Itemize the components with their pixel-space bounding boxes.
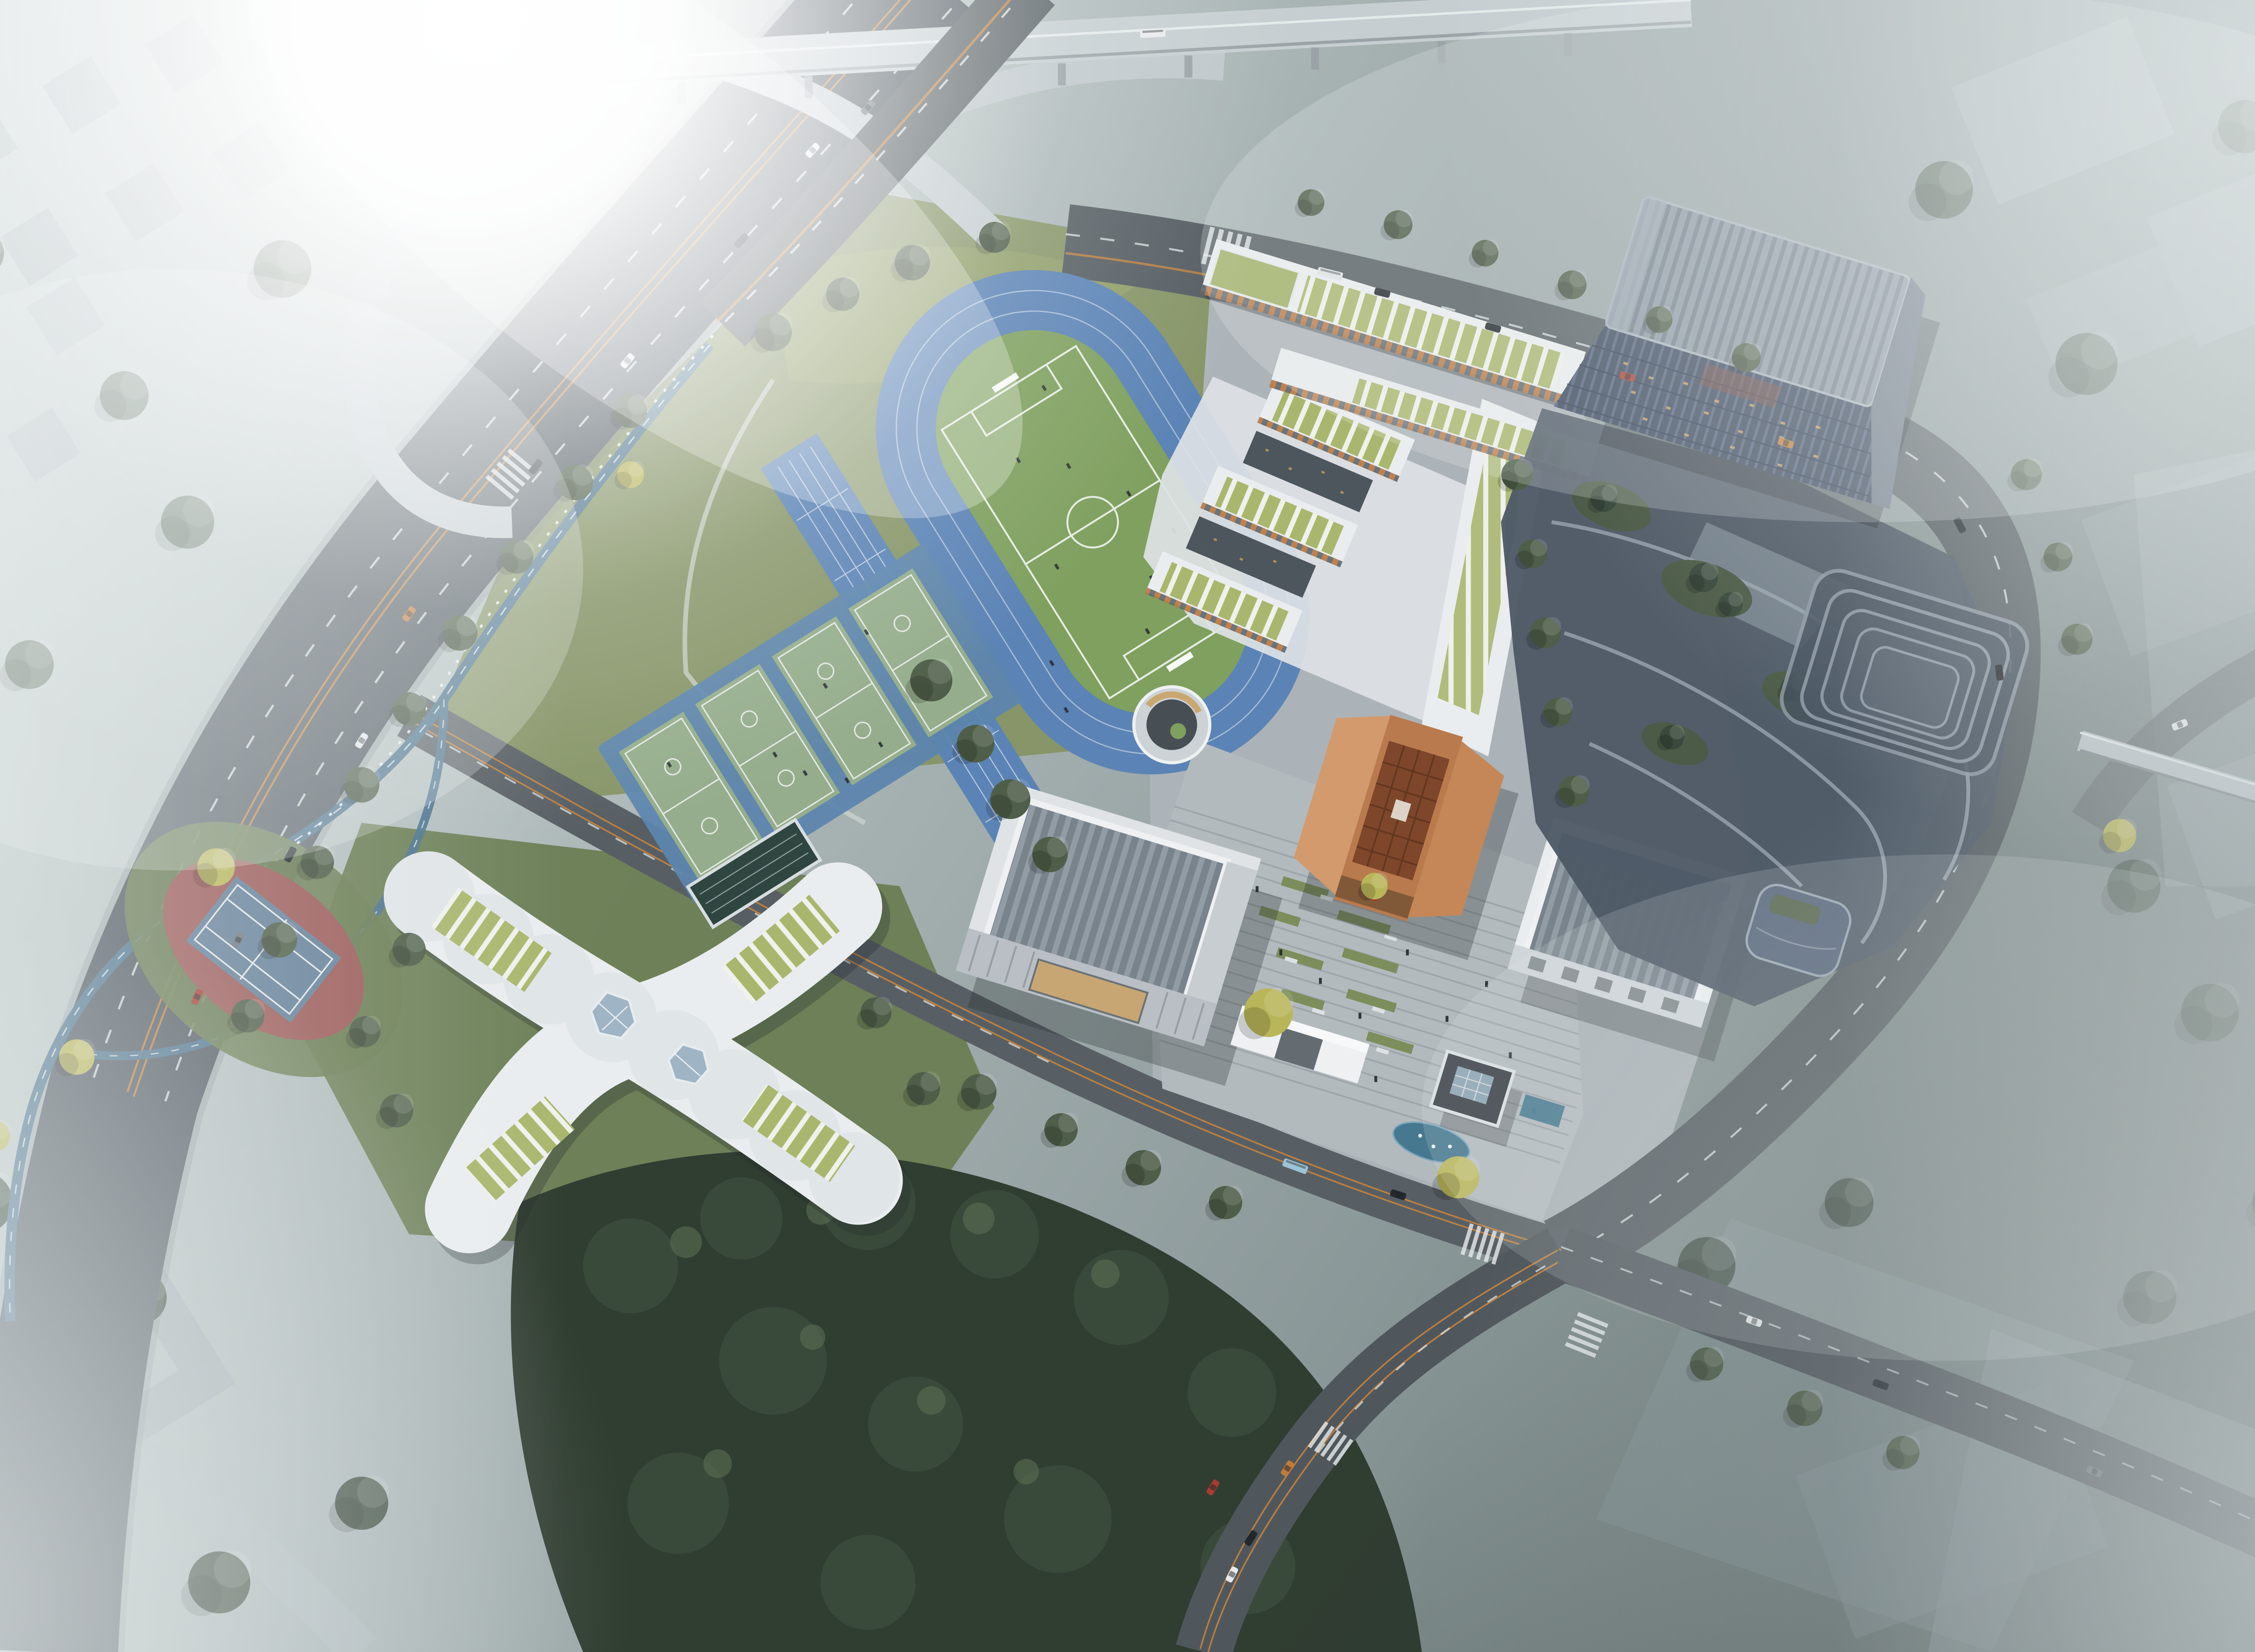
aerial-render: Foggy aerial rendering of a school campu… [0,0,2255,1652]
